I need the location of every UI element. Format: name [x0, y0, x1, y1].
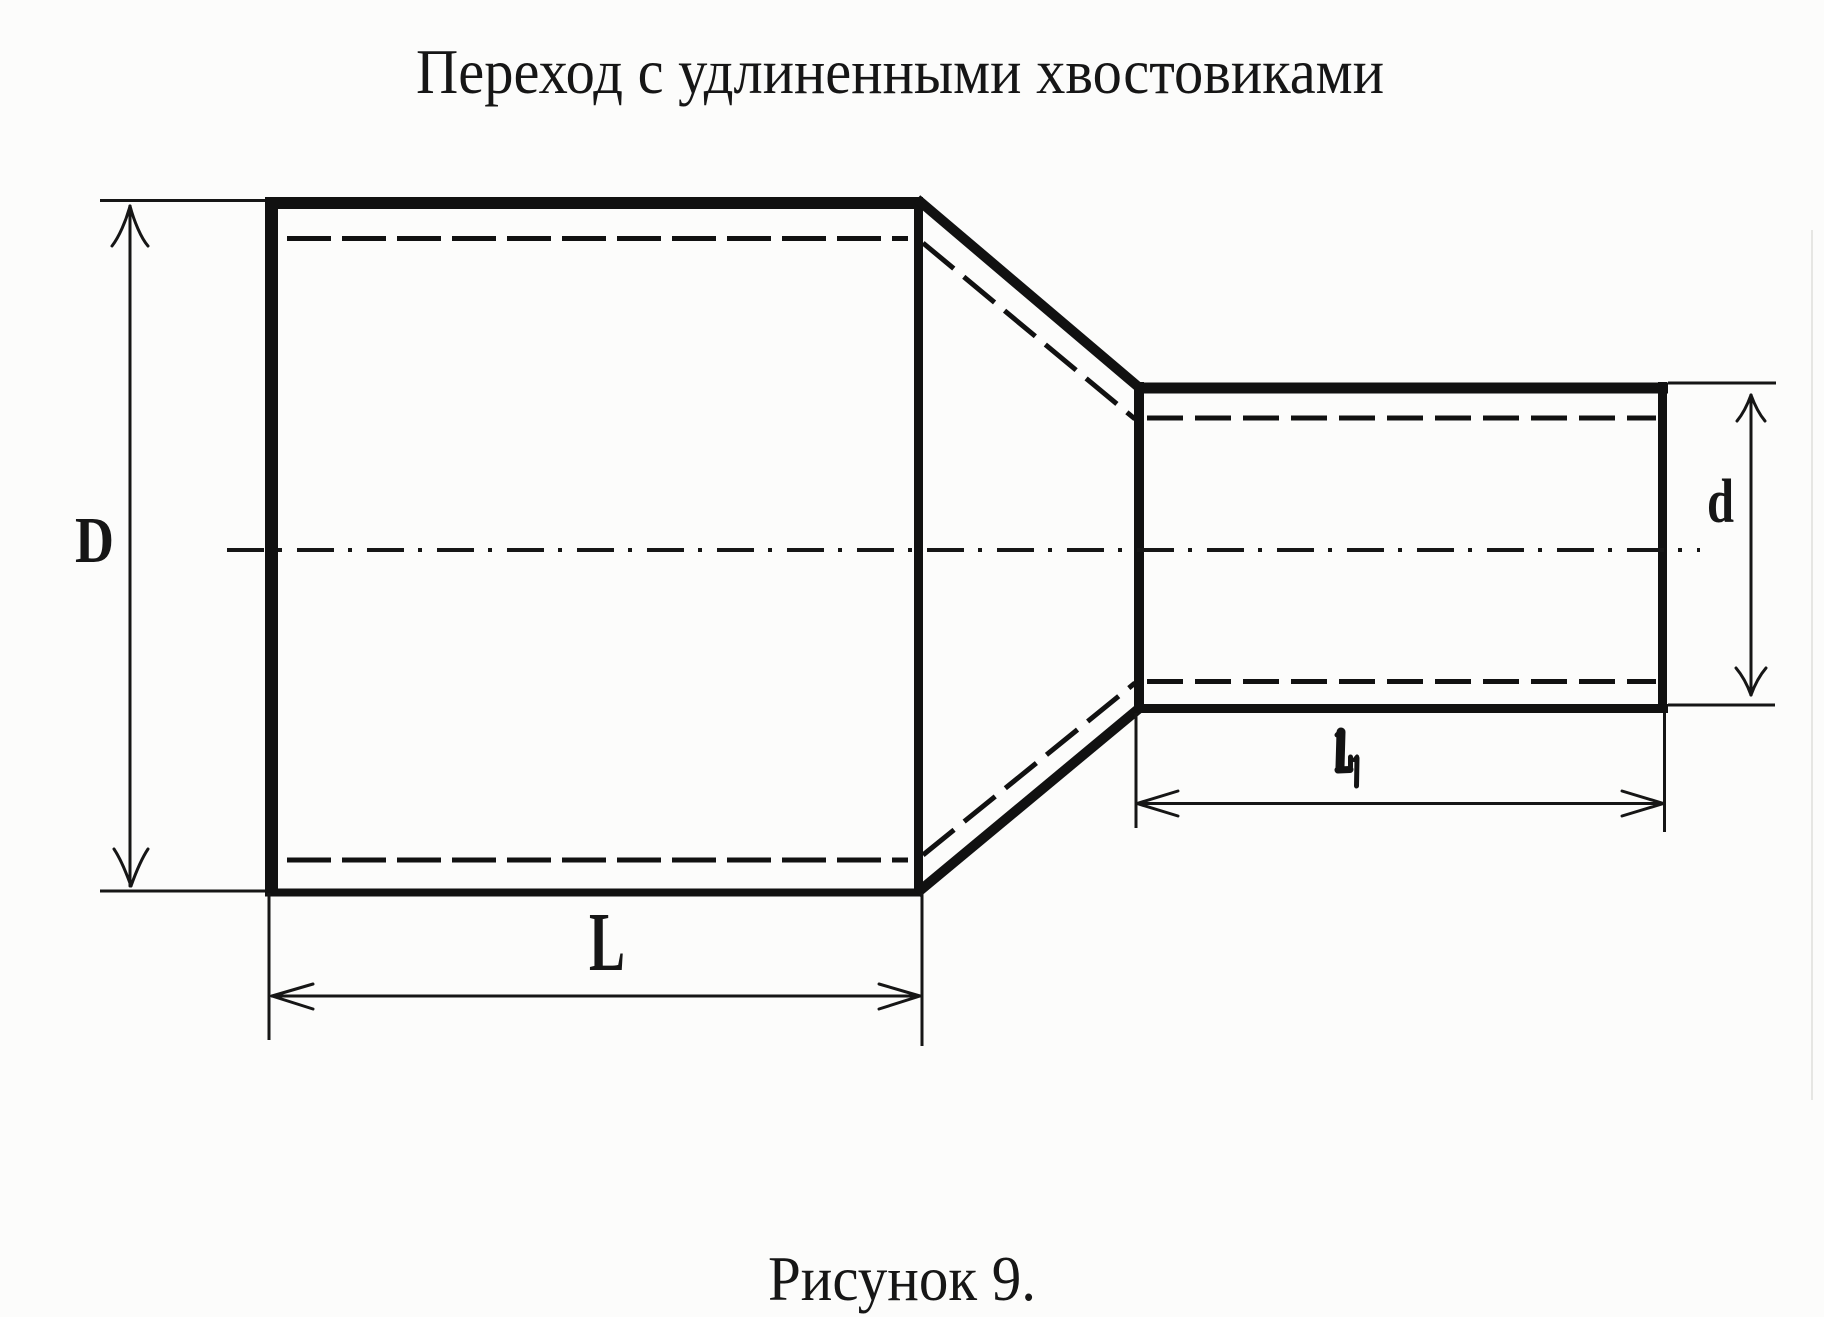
svg-text:d: d — [1707, 468, 1734, 536]
svg-text:Рисунок 9.: Рисунок 9. — [768, 1244, 1036, 1314]
svg-text:L: L — [589, 896, 625, 989]
svg-text:Переход с удлиненными хвостови: Переход с удлиненными хвостовиками — [416, 37, 1384, 107]
svg-text:D: D — [75, 504, 114, 577]
